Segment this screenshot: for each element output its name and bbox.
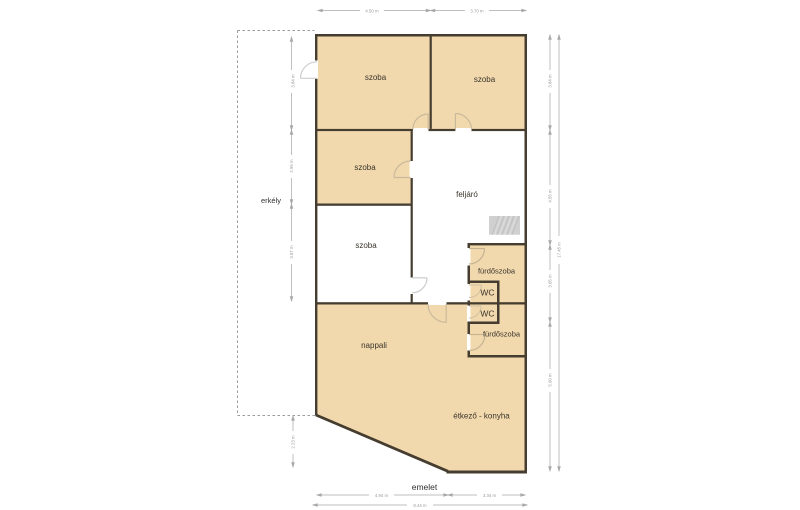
svg-text:szoba: szoba bbox=[354, 163, 376, 172]
svg-text:3.87 m: 3.87 m bbox=[289, 245, 294, 259]
svg-text:5.90 m: 5.90 m bbox=[548, 373, 553, 387]
svg-text:3.70 m: 3.70 m bbox=[470, 8, 484, 13]
svg-text:feljáró: feljáró bbox=[456, 190, 478, 199]
svg-text:2.23 m: 2.23 m bbox=[291, 435, 296, 449]
svg-text:3.05 m: 3.05 m bbox=[548, 274, 553, 288]
svg-text:WC: WC bbox=[480, 288, 494, 298]
svg-text:4.94 m: 4.94 m bbox=[375, 493, 389, 498]
svg-text:szoba: szoba bbox=[474, 75, 496, 84]
svg-text:4.50 m: 4.50 m bbox=[365, 8, 379, 13]
svg-text:3.84 m: 3.84 m bbox=[548, 74, 553, 88]
svg-text:szoba: szoba bbox=[365, 73, 387, 82]
svg-text:emelet: emelet bbox=[412, 482, 438, 492]
svg-text:fürdőszoba: fürdőszoba bbox=[483, 330, 521, 339]
svg-text:WC: WC bbox=[480, 309, 494, 319]
svg-text:fürdőszoba: fürdőszoba bbox=[478, 267, 516, 276]
svg-text:szoba: szoba bbox=[355, 241, 377, 250]
svg-text:4.55 m: 4.55 m bbox=[548, 189, 553, 203]
svg-text:17.45 m: 17.45 m bbox=[557, 242, 562, 258]
svg-text:3.84 m: 3.84 m bbox=[290, 74, 295, 88]
svg-text:erkély: erkély bbox=[261, 196, 281, 205]
svg-text:étkező - konyha: étkező - konyha bbox=[453, 412, 510, 421]
svg-text:8.44 m: 8.44 m bbox=[413, 503, 427, 508]
svg-text:nappali: nappali bbox=[361, 341, 387, 350]
svg-text:3.34 m: 3.34 m bbox=[483, 493, 497, 498]
svg-text:2.95 m: 2.95 m bbox=[289, 159, 294, 173]
